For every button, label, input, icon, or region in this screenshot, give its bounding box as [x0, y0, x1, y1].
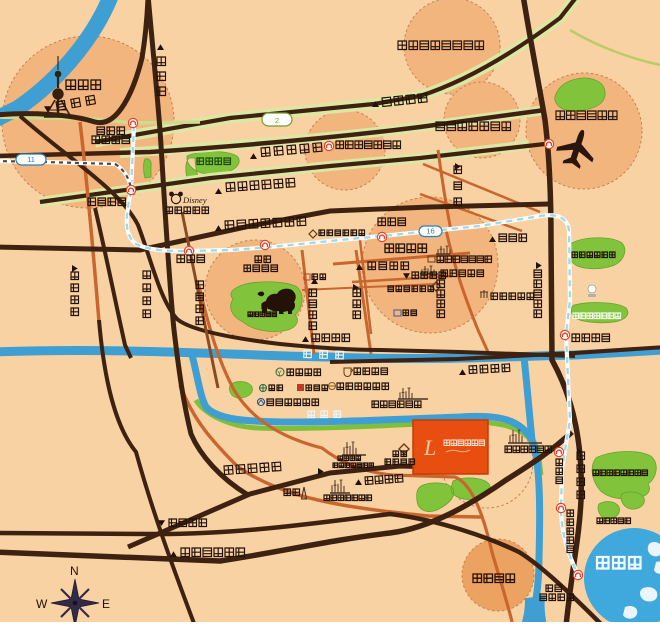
svg-text:N: N	[70, 564, 79, 578]
svg-text:E: E	[102, 597, 110, 611]
svg-text:Disney: Disney	[182, 195, 207, 205]
svg-text:L: L	[423, 435, 436, 460]
svg-text:2: 2	[275, 116, 279, 125]
svg-text:11: 11	[27, 155, 35, 164]
svg-text:W: W	[36, 597, 48, 611]
svg-text:16: 16	[426, 227, 434, 236]
svg-text:Y: Y	[277, 371, 282, 378]
